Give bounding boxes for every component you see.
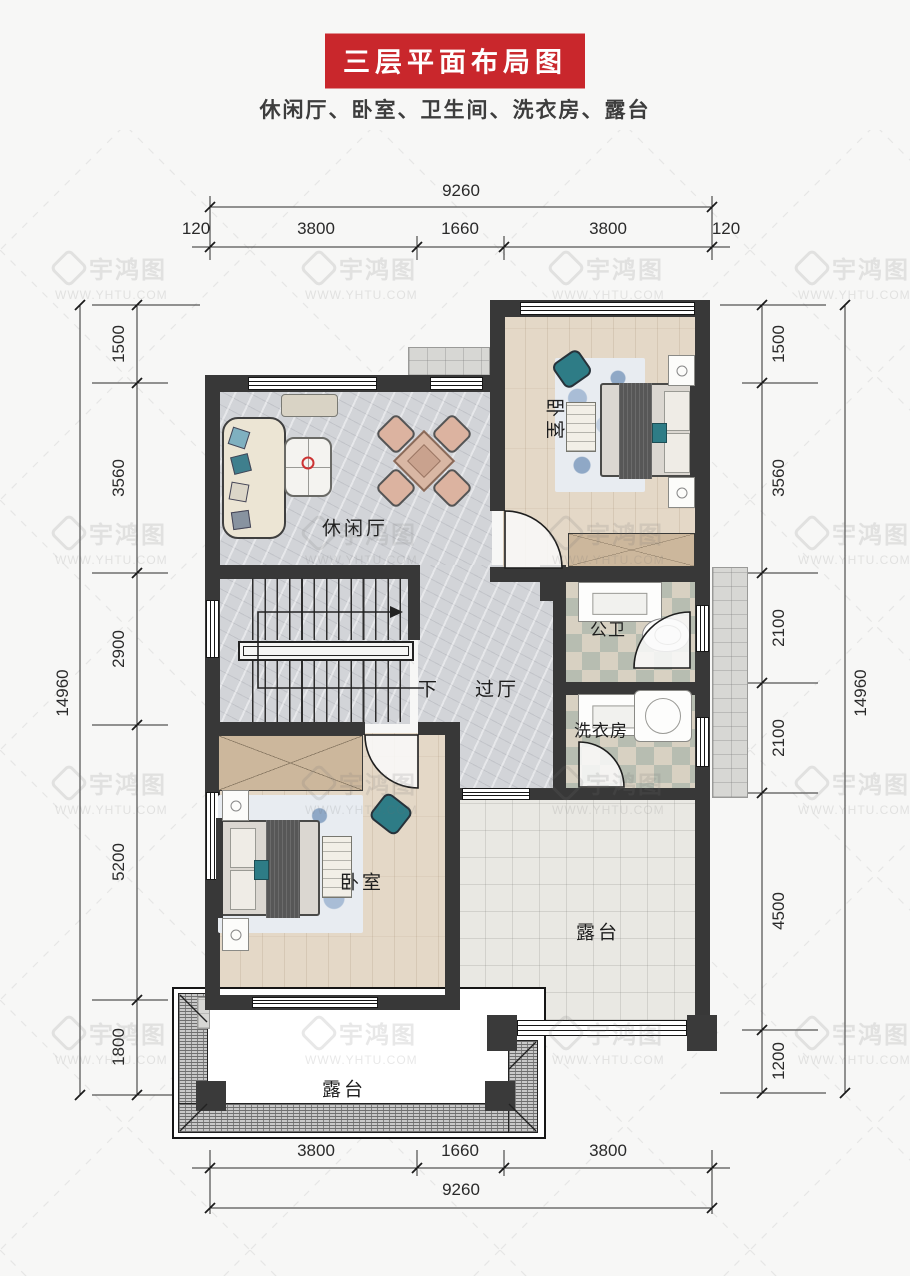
- label-stairs-down: 下: [418, 675, 440, 702]
- page-title: 三层平面布局图: [325, 34, 585, 89]
- label-bedroom-top: 卧室: [543, 398, 570, 442]
- label-hallway: 过厅: [475, 675, 519, 702]
- page-subtitle: 休闲厅、卧室、卫生间、洗衣房、露台: [260, 94, 651, 124]
- label-laundry: 洗衣房: [574, 717, 628, 742]
- label-terrace-bottom: 露台: [322, 1075, 366, 1102]
- floor-plan-page: 三层平面布局图 休闲厅、卧室、卫生间、洗衣房、露台: [0, 0, 910, 1276]
- label-bedroom-bottom: 卧室: [340, 868, 384, 895]
- label-bathroom: 公卫: [590, 616, 626, 641]
- doors-and-annotations: [0, 0, 910, 1276]
- label-terrace-right: 露台: [576, 918, 620, 945]
- label-leisure-hall: 休闲厅: [322, 514, 388, 541]
